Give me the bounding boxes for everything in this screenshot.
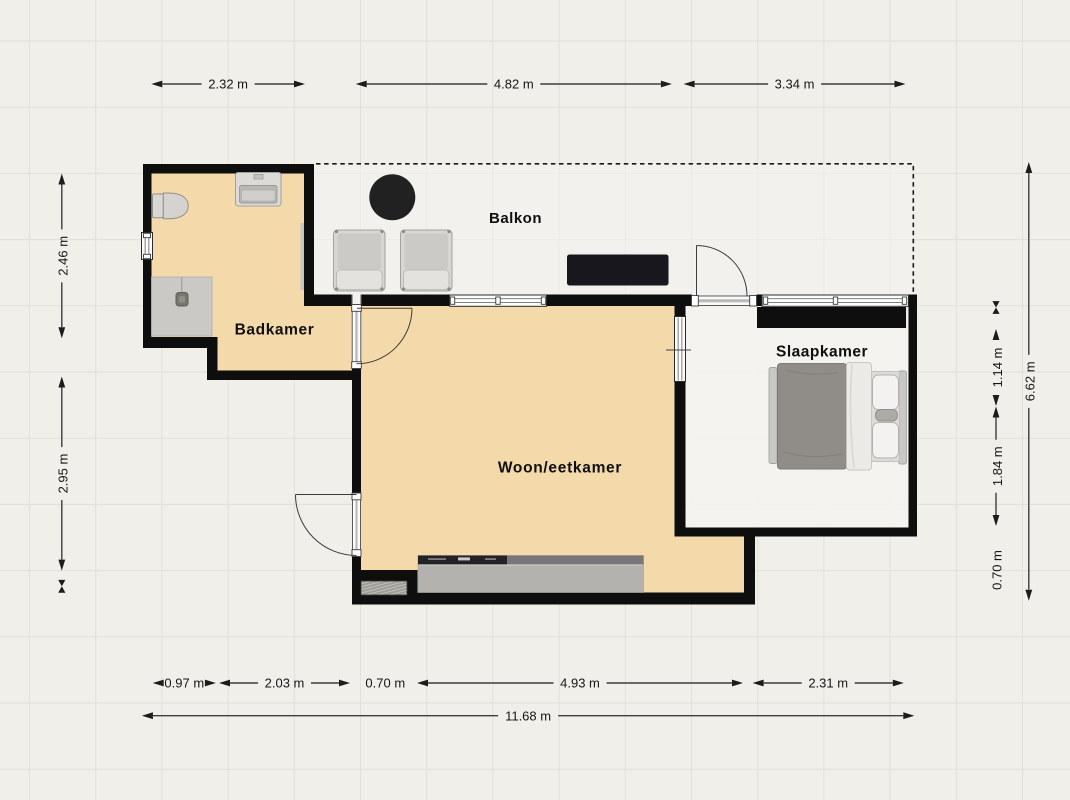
svg-text:4.93 m: 4.93 m <box>560 676 600 691</box>
svg-text:2.31 m: 2.31 m <box>808 676 848 691</box>
svg-text:Slaapkamer: Slaapkamer <box>776 344 868 361</box>
svg-text:11.68 m: 11.68 m <box>505 708 551 723</box>
svg-text:2.32 m: 2.32 m <box>208 77 248 92</box>
svg-text:Balkon: Balkon <box>489 210 542 227</box>
svg-text:6.62 m: 6.62 m <box>1023 361 1038 401</box>
svg-text:0.70 m: 0.70 m <box>365 676 405 691</box>
svg-text:4.82 m: 4.82 m <box>494 77 534 92</box>
svg-text:2.95 m: 2.95 m <box>56 454 71 494</box>
svg-text:Badkamer: Badkamer <box>235 322 315 339</box>
svg-text:0.97 m: 0.97 m <box>164 676 204 691</box>
svg-text:3.34 m: 3.34 m <box>775 77 815 92</box>
svg-text:0.70 m: 0.70 m <box>990 550 1005 590</box>
svg-text:1.14 m: 1.14 m <box>990 348 1005 388</box>
svg-text:2.03 m: 2.03 m <box>265 676 305 691</box>
svg-text:2.46 m: 2.46 m <box>56 236 71 276</box>
svg-text:1.84 m: 1.84 m <box>990 446 1005 486</box>
svg-text:Woon/eetkamer: Woon/eetkamer <box>498 460 622 477</box>
